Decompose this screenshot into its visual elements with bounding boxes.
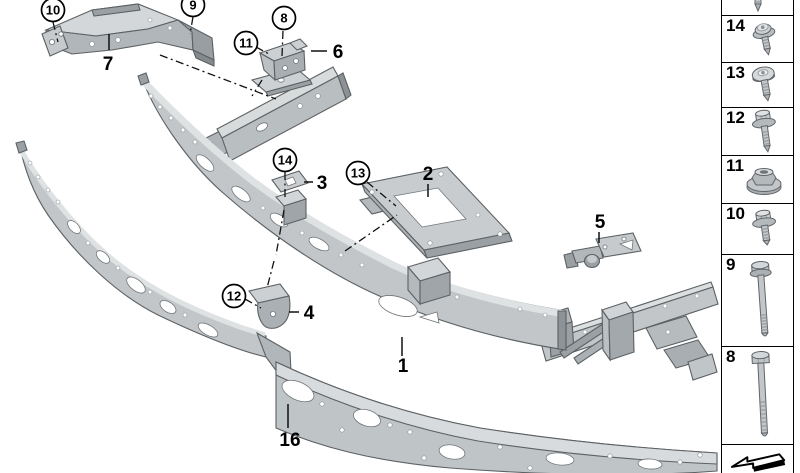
long-hex-bolt-icon xyxy=(744,350,782,442)
legend-number: 11 xyxy=(726,156,744,176)
part-label-2[interactable]: 2 xyxy=(423,164,434,185)
part-label-3[interactable]: 3 xyxy=(317,173,328,194)
svg-text:12: 12 xyxy=(227,289,241,304)
part-5-bracket[interactable] xyxy=(564,233,641,268)
callout-14[interactable]: 14 xyxy=(274,149,297,172)
svg-text:10: 10 xyxy=(46,3,60,18)
part-rail[interactable] xyxy=(200,67,351,163)
fastener-legend: 14 13 xyxy=(721,0,795,473)
callout-11[interactable]: 11 xyxy=(235,32,258,55)
legend-number: 10 xyxy=(726,204,745,224)
legend-item-11[interactable]: 11 xyxy=(721,155,794,205)
part-label-5[interactable]: 5 xyxy=(595,212,606,233)
long-hex-bolt-icon xyxy=(744,259,782,343)
part-label-6[interactable]: 6 xyxy=(333,42,344,63)
screw-tip-icon xyxy=(746,0,770,14)
callout-9[interactable]: 9 xyxy=(182,0,205,17)
direction-arrow-icon xyxy=(727,451,789,473)
part-2-mount-plate[interactable] xyxy=(360,167,512,258)
svg-text:13: 13 xyxy=(351,166,365,181)
legend-number: 8 xyxy=(726,347,735,367)
part-label-1[interactable]: 1 xyxy=(398,356,409,377)
callout-8[interactable]: 8 xyxy=(273,7,296,30)
legend-number: 12 xyxy=(726,108,745,128)
part-label-4[interactable]: 4 xyxy=(304,303,315,324)
legend-item-12[interactable]: 12 xyxy=(721,107,794,157)
hex-flange-screw-icon xyxy=(745,209,785,249)
legend-item-13[interactable]: 13 xyxy=(721,62,794,109)
legend-item-9[interactable]: 9 xyxy=(721,254,794,348)
part-4-bracket[interactable] xyxy=(249,284,290,328)
svg-text:14: 14 xyxy=(278,153,293,168)
button-head-screw-icon xyxy=(745,64,785,106)
callout-13[interactable]: 13 xyxy=(347,162,370,185)
legend-number: 13 xyxy=(726,63,745,83)
callout-12[interactable]: 12 xyxy=(223,285,246,308)
hex-washer-screw-icon xyxy=(745,109,785,155)
svg-text:9: 9 xyxy=(189,0,196,13)
part-label-16[interactable]: 16 xyxy=(279,430,300,451)
part-1-carrier-beam[interactable] xyxy=(138,73,566,350)
callout-10[interactable]: 10 xyxy=(42,0,65,22)
svg-text:8: 8 xyxy=(280,11,287,26)
parts-diagram-page: 7 6 3 2 4 5 1 16 10 9 8 11 14 xyxy=(0,0,800,473)
legend-item-direction[interactable] xyxy=(721,444,794,473)
legend-number: 14 xyxy=(726,16,745,36)
svg-text:11: 11 xyxy=(239,36,253,51)
legend-number: 9 xyxy=(726,255,735,275)
flange-nut-icon xyxy=(741,161,787,199)
legend-item-10[interactable]: 10 xyxy=(721,203,794,256)
legend-item-14[interactable]: 14 xyxy=(721,15,794,64)
label-pointer-lines xyxy=(109,34,599,428)
washer-head-screw-icon xyxy=(745,18,785,60)
legend-item-8[interactable]: 8 xyxy=(721,346,794,446)
part-3-clip[interactable] xyxy=(272,171,308,192)
diagram-canvas: 7 6 3 2 4 5 1 16 10 9 8 11 14 xyxy=(0,0,722,473)
part-label-7[interactable]: 7 xyxy=(103,54,114,75)
